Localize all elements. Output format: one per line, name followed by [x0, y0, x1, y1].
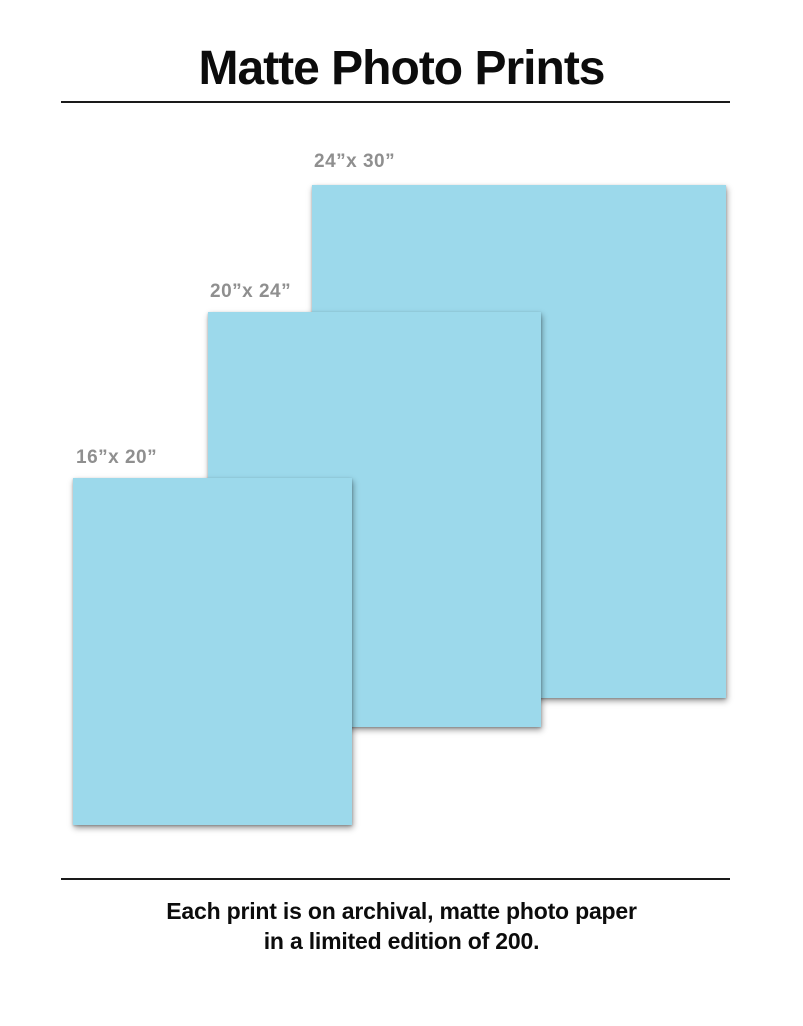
page: Matte Photo Prints 24”x 30” 20”x 24” 16”…	[0, 0, 803, 1026]
print-size-label-24x30: 24”x 30”	[314, 151, 395, 173]
print-size-label-16x20: 16”x 20”	[76, 447, 157, 469]
print-swatch-16x20	[73, 478, 352, 825]
caption: Each print is on archival, matte photo p…	[0, 896, 803, 956]
caption-line-1: Each print is on archival, matte photo p…	[0, 896, 803, 926]
caption-line-2: in a limited edition of 200.	[0, 926, 803, 956]
print-size-comparison-diagram: 24”x 30” 20”x 24” 16”x 20”	[0, 0, 803, 1026]
print-size-label-20x24: 20”x 24”	[210, 281, 291, 303]
bottom-divider	[61, 878, 730, 880]
